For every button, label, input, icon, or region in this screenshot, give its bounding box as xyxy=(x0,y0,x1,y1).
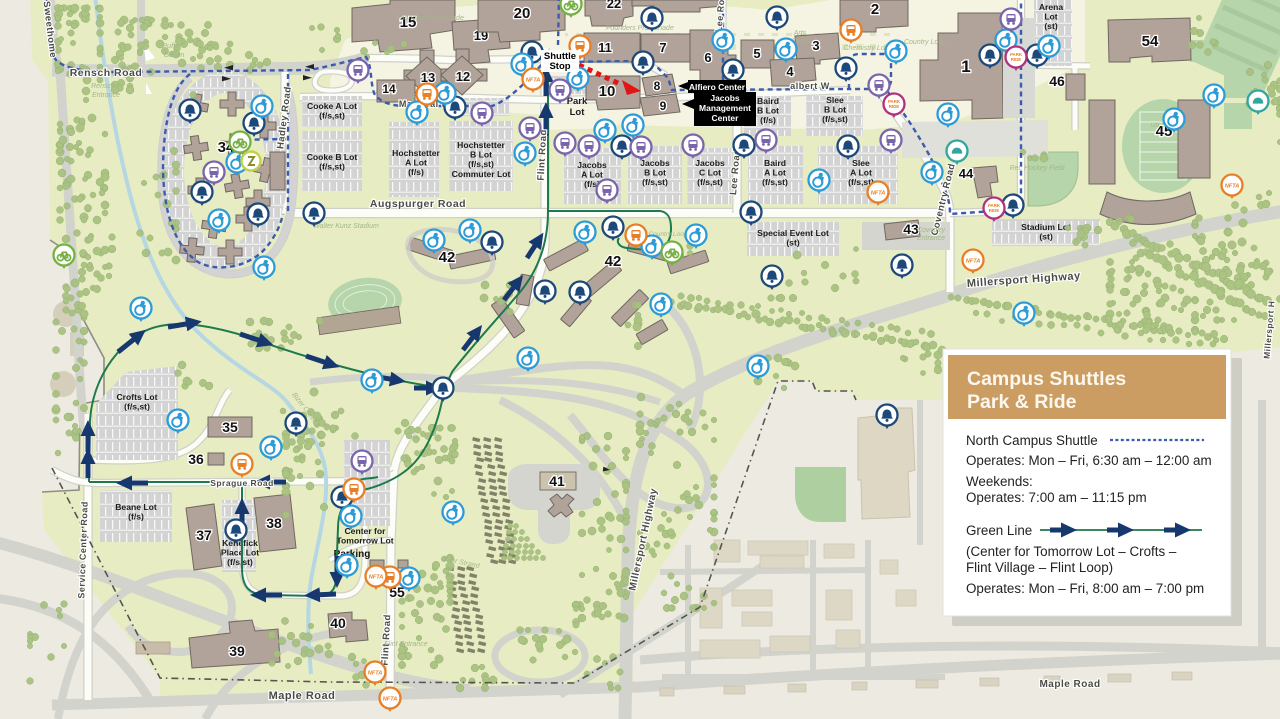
svg-text:22: 22 xyxy=(607,0,621,11)
svg-text:BairdA Lot(f/s,st): BairdA Lot(f/s,st) xyxy=(762,158,788,187)
svg-text:36: 36 xyxy=(188,451,204,467)
svg-text:35: 35 xyxy=(222,419,238,435)
svg-text:46: 46 xyxy=(1049,73,1065,89)
svg-text:Operates: Mon – Fri, 8:00 am –: Operates: Mon – Fri, 8:00 am – 7:00 pm xyxy=(966,581,1204,596)
svg-text:11: 11 xyxy=(598,40,612,55)
svg-text:Flint Village – Flint Loop): Flint Village – Flint Loop) xyxy=(966,560,1113,575)
svg-text:9: 9 xyxy=(660,99,667,113)
svg-text:Rensch Road: Rensch Road xyxy=(70,67,143,79)
svg-text:10: 10 xyxy=(599,83,616,100)
svg-text:44: 44 xyxy=(959,166,974,181)
svg-text:Center: Center xyxy=(712,113,740,123)
svg-text:Founders Promenade: Founders Promenade xyxy=(606,25,674,32)
svg-text:42: 42 xyxy=(605,253,622,270)
svg-text:Puffer: Puffer xyxy=(162,41,183,50)
svg-text:Jacobs: Jacobs xyxy=(710,93,740,103)
svg-text:Augspurger Road: Augspurger Road xyxy=(370,198,466,210)
svg-text:7: 7 xyxy=(659,40,666,55)
svg-text:Stop: Stop xyxy=(549,61,570,72)
svg-text:41: 41 xyxy=(549,473,565,489)
svg-text:Rec Hockey Field: Rec Hockey Field xyxy=(1010,165,1066,172)
svg-text:North Campus Shuttle: North Campus Shuttle xyxy=(966,433,1098,448)
svg-text:albert W: albert W xyxy=(790,81,830,91)
svg-text:4: 4 xyxy=(786,64,794,79)
svg-text:20: 20 xyxy=(514,5,531,22)
svg-text:Maple Road: Maple Road xyxy=(1039,679,1100,690)
svg-text:JacobsC Lot(f/s,st): JacobsC Lot(f/s,st) xyxy=(695,158,725,187)
svg-text:Flint Entrance: Flint Entrance xyxy=(384,641,427,648)
svg-text:Park & Ride: Park & Ride xyxy=(967,391,1077,413)
svg-text:Entrance: Entrance xyxy=(92,92,120,99)
svg-text:JacobsB Lot(f/s,st): JacobsB Lot(f/s,st) xyxy=(640,158,670,187)
svg-text:6: 6 xyxy=(704,50,711,65)
svg-text:Alfiero Center: Alfiero Center xyxy=(689,82,746,92)
svg-text:3: 3 xyxy=(812,38,819,53)
svg-text:BairdB Lot(f/s): BairdB Lot(f/s) xyxy=(757,96,779,125)
svg-text:42: 42 xyxy=(439,249,456,266)
svg-text:Country Loop: Country Loop xyxy=(904,39,946,46)
svg-text:(Center for Tomorrow Lot – Cro: (Center for Tomorrow Lot – Crofts – xyxy=(966,544,1177,559)
svg-text:Weekends:: Weekends: xyxy=(966,474,1033,489)
svg-text:5: 5 xyxy=(753,46,760,61)
svg-text:8: 8 xyxy=(654,79,661,93)
svg-text:Center forTomorrow Lot: Center forTomorrow Lot xyxy=(336,526,393,546)
svg-text:14: 14 xyxy=(382,82,396,96)
svg-text:Entrance: Entrance xyxy=(917,235,945,242)
svg-text:Coventry: Coventry xyxy=(917,227,946,234)
svg-text:Founders Promenade: Founders Promenade xyxy=(396,15,464,22)
svg-text:Management: Management xyxy=(699,103,751,113)
svg-text:Walter Kunz Stadium: Walter Kunz Stadium xyxy=(313,223,379,230)
svg-text:Rensch: Rensch xyxy=(91,83,115,90)
svg-text:Campus Shuttles: Campus Shuttles xyxy=(967,368,1126,390)
svg-text:37: 37 xyxy=(196,527,212,543)
svg-text:38: 38 xyxy=(266,515,282,531)
svg-text:Operates: 7:00 am – 11:15 pm: Operates: 7:00 am – 11:15 pm xyxy=(966,490,1147,505)
svg-text:40: 40 xyxy=(330,615,346,631)
svg-text:Green: Green xyxy=(164,50,185,59)
svg-text:Maple Road: Maple Road xyxy=(269,690,336,702)
svg-text:Green Line: Green Line xyxy=(966,523,1032,538)
svg-text:2: 2 xyxy=(871,1,879,18)
svg-text:54: 54 xyxy=(1142,33,1159,50)
svg-text:39: 39 xyxy=(229,643,245,659)
svg-text:Arts: Arts xyxy=(793,30,807,37)
svg-text:12: 12 xyxy=(456,69,470,84)
svg-text:1: 1 xyxy=(961,57,970,76)
svg-text:Sprague Road: Sprague Road xyxy=(210,478,274,488)
svg-text:Operates: Mon – Fri, 6:30 am –: Operates: Mon – Fri, 6:30 am – 12:00 am xyxy=(966,453,1212,468)
